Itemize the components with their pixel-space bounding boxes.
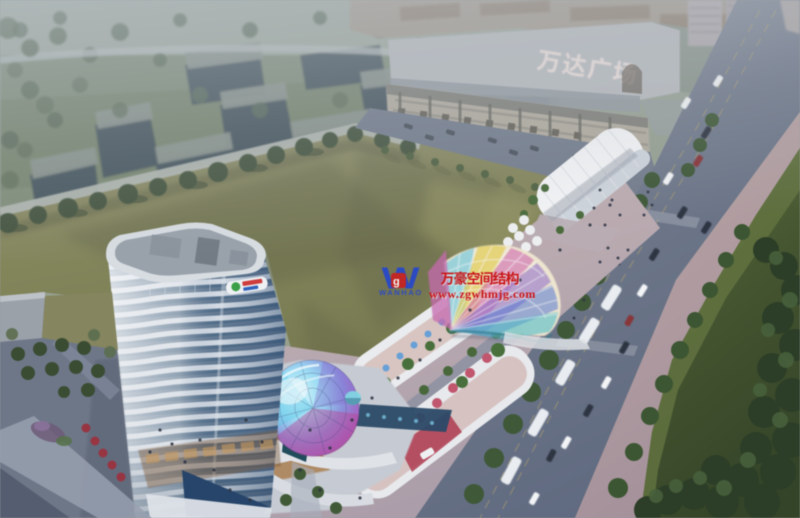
- svg-text:g: g: [393, 276, 400, 288]
- svg-text:WANHAO: WANHAO: [379, 288, 423, 297]
- svg-text:www.zgwhmjg.com: www.zgwhmjg.com: [429, 287, 536, 301]
